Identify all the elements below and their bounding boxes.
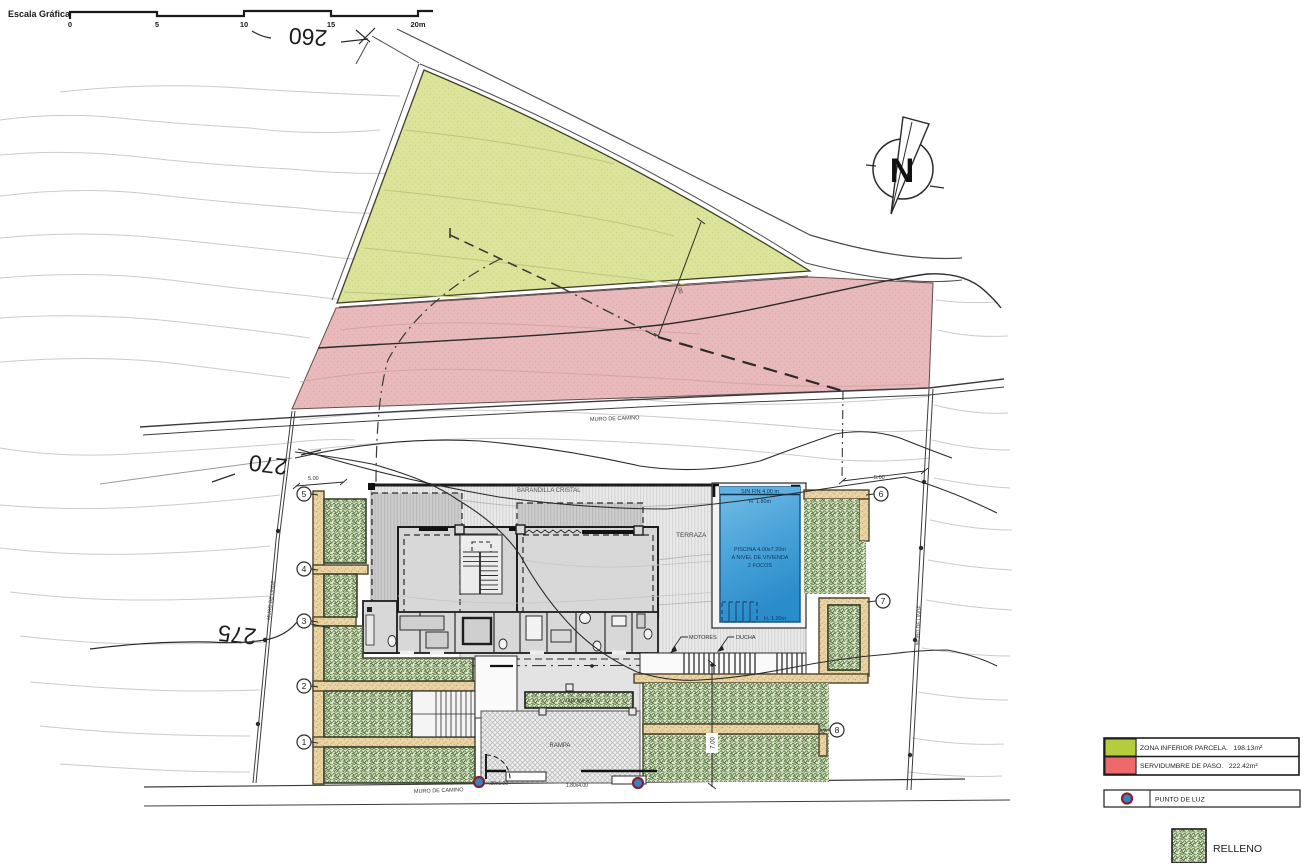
svg-text:.80x1.20: .80x1.20 <box>489 781 508 787</box>
svg-text:RAMPA: RAMPA <box>550 743 571 749</box>
svg-text:5.00: 5.00 <box>308 476 319 482</box>
svg-text:H. 1.20m: H. 1.20m <box>764 616 787 622</box>
svg-text:6: 6 <box>879 489 884 499</box>
svg-text:DUCHA: DUCHA <box>736 635 756 641</box>
svg-text:MOTORES: MOTORES <box>689 635 717 641</box>
svg-text:260: 260 <box>288 23 328 52</box>
svg-text:ZONA INFERIOR PARCELA. 198.1: ZONA INFERIOR PARCELA. 198.13m² <box>1140 745 1263 752</box>
svg-text:N: N <box>890 152 915 190</box>
svg-text:5: 5 <box>302 489 307 499</box>
svg-text:SIN FIN 4.00 m: SIN FIN 4.00 m <box>741 489 779 495</box>
svg-text:5: 5 <box>155 20 159 29</box>
svg-text:PISCINA 4.00x7.20m: PISCINA 4.00x7.20m <box>734 547 786 553</box>
svg-text:10: 10 <box>240 20 248 29</box>
svg-text:JARDINERA: JARDINERA <box>565 699 594 705</box>
svg-text:7.00: 7.00 <box>711 737 717 749</box>
svg-text:275: 275 <box>217 620 258 650</box>
svg-text:TERRAZA: TERRAZA <box>676 532 707 539</box>
svg-text:RELLENO: RELLENO <box>1213 843 1262 855</box>
svg-text:1.80x4.00: 1.80x4.00 <box>566 783 588 789</box>
svg-text:BARANDILLA CRISTAL: BARANDILLA CRISTAL <box>517 488 581 494</box>
svg-text:8: 8 <box>835 725 840 735</box>
svg-text:PUNTO DE LUZ: PUNTO DE LUZ <box>1155 797 1205 804</box>
svg-text:0: 0 <box>68 20 72 29</box>
svg-text:20m: 20m <box>410 20 425 29</box>
svg-text:2 FOCOS: 2 FOCOS <box>748 563 772 569</box>
svg-text:3: 3 <box>302 616 307 626</box>
svg-text:Escala Gráfica: Escala Gráfica <box>8 9 71 19</box>
svg-text:H. 1.80m: H. 1.80m <box>749 499 772 505</box>
svg-text:270: 270 <box>247 450 288 480</box>
svg-text:SERVIDUMBRE DE PASO. 222.42m: SERVIDUMBRE DE PASO. 222.42m² <box>1140 763 1258 770</box>
svg-text:1: 1 <box>302 737 307 747</box>
svg-text:4: 4 <box>302 564 307 574</box>
svg-text:A NIVEL DE VIVIENDA: A NIVEL DE VIVIENDA <box>732 555 789 561</box>
svg-text:7: 7 <box>881 596 886 606</box>
svg-text:2: 2 <box>302 681 307 691</box>
